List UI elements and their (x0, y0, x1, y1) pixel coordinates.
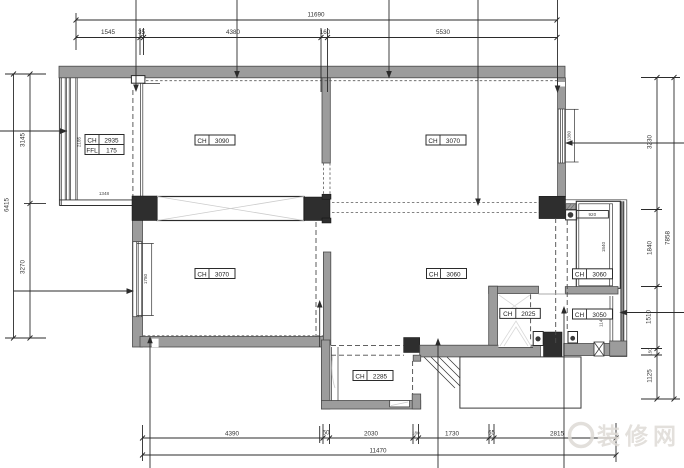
svg-text:3060: 3060 (592, 272, 607, 279)
svg-text:CH: CH (575, 272, 585, 279)
svg-text:3050: 3050 (592, 312, 607, 319)
svg-text:4390: 4390 (225, 431, 240, 438)
svg-text:60: 60 (322, 430, 330, 437)
svg-text:1380: 1380 (567, 130, 572, 141)
svg-text:1840: 1840 (601, 241, 606, 252)
svg-text:CH: CH (429, 271, 439, 278)
svg-text:3070: 3070 (446, 138, 461, 145)
svg-text:1125: 1125 (647, 369, 654, 383)
svg-text:65: 65 (488, 430, 496, 437)
svg-text:1510: 1510 (646, 310, 653, 325)
svg-text:11690: 11690 (307, 12, 325, 19)
svg-text:2935: 2935 (104, 138, 119, 145)
svg-text:35: 35 (138, 29, 146, 36)
svg-text:1348: 1348 (99, 191, 110, 196)
svg-text:CH: CH (503, 311, 513, 318)
svg-text:3090: 3090 (215, 138, 230, 145)
svg-text:CH: CH (355, 373, 365, 380)
svg-text:装修网: 装修网 (597, 423, 681, 449)
svg-text:160: 160 (320, 29, 331, 36)
svg-text:3070: 3070 (215, 271, 230, 278)
svg-text:CH: CH (428, 138, 438, 145)
svg-text:1840: 1840 (647, 241, 654, 256)
svg-text:1730: 1730 (445, 431, 460, 438)
svg-text:1780: 1780 (143, 273, 148, 284)
svg-text:CH: CH (197, 138, 207, 145)
svg-text:6415: 6415 (4, 198, 11, 213)
svg-text:5530: 5530 (436, 29, 451, 36)
svg-text:4380: 4380 (226, 29, 241, 36)
svg-text:CH: CH (197, 271, 207, 278)
svg-text:7858: 7858 (665, 231, 672, 246)
svg-text:3270: 3270 (20, 260, 27, 275)
svg-text:175: 175 (106, 148, 117, 155)
svg-text:FFL: FFL (86, 148, 98, 155)
svg-text:2815: 2815 (550, 431, 565, 438)
svg-text:11470: 11470 (369, 448, 387, 455)
svg-text:3230: 3230 (647, 135, 654, 150)
svg-text:3060: 3060 (446, 271, 461, 278)
svg-text:CH: CH (575, 312, 585, 319)
svg-text:2025: 2025 (521, 311, 536, 318)
svg-text:150: 150 (648, 348, 653, 356)
svg-text:CH: CH (87, 138, 97, 145)
svg-text:180: 180 (412, 431, 420, 436)
svg-text:920: 920 (588, 212, 596, 217)
svg-text:2185: 2185 (77, 136, 82, 147)
svg-text:2285: 2285 (373, 373, 388, 380)
svg-text:1545: 1545 (101, 29, 116, 36)
svg-text:2030: 2030 (364, 431, 379, 438)
svg-text:3145: 3145 (20, 133, 27, 148)
